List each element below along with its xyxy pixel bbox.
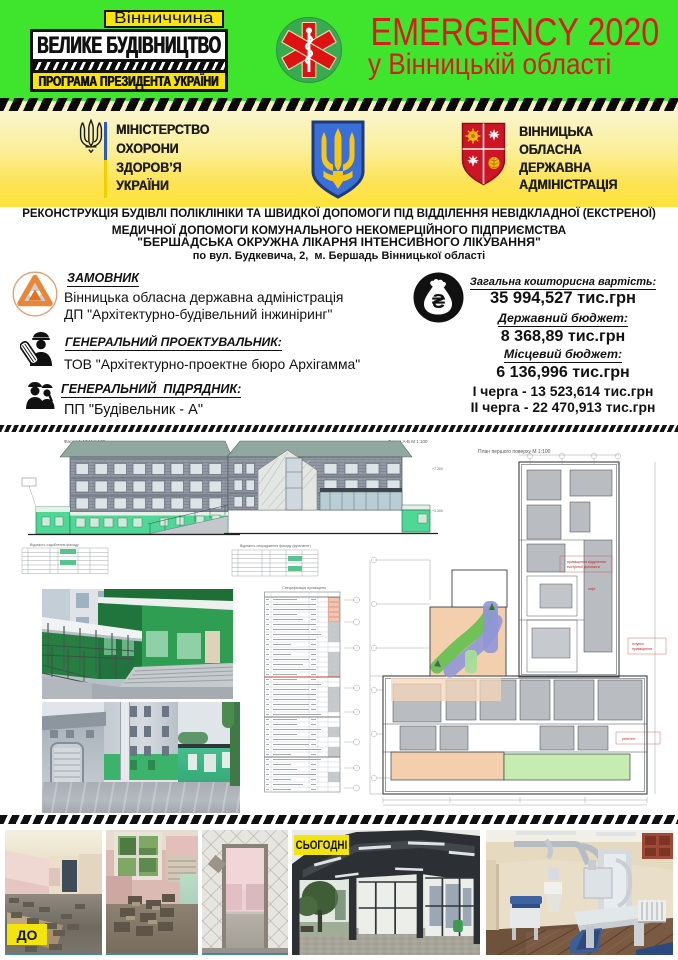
svg-text:екстреної допомоги: екстреної допомоги xyxy=(567,565,600,569)
svg-text:+7.200: +7.200 xyxy=(432,467,443,471)
svg-text:існуючі: існуючі xyxy=(632,642,644,646)
svg-text:ліфт: ліфт xyxy=(588,587,596,591)
svg-text:рентген: рентген xyxy=(622,737,635,741)
svg-text:План першого поверху М 1:100: План першого поверху М 1:100 xyxy=(478,449,551,455)
svg-text:+3.300: +3.300 xyxy=(432,509,443,513)
svg-text:Специфікація приміщень: Специфікація приміщень xyxy=(282,586,326,590)
svg-text:Відомість оздоблення фасаду: Відомість оздоблення фасаду xyxy=(30,543,79,547)
svg-text:приміщення відділення: приміщення відділення xyxy=(567,560,606,564)
svg-text:приміщення: приміщення xyxy=(632,647,652,651)
svg-text:Відомість опорядження фасаду (: Відомість опорядження фасаду (фрагмент) xyxy=(240,544,311,548)
